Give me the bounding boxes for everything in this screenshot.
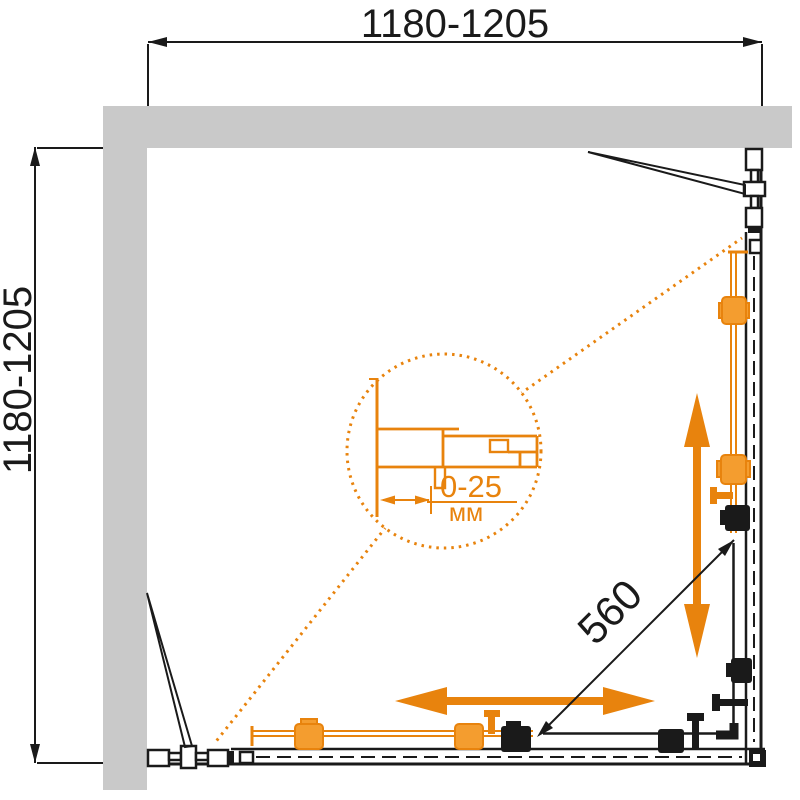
adjuster-handle-stem <box>715 492 733 499</box>
black-roller-right-lower <box>731 658 752 683</box>
detail-callout: 0-25 мм <box>214 238 742 744</box>
telescopic-segment <box>746 208 762 227</box>
leader-line-upper <box>520 238 742 394</box>
telescopic-segment <box>746 149 762 170</box>
depth-dimension-label: 1180-1205 <box>0 286 40 474</box>
enclosure-plan-drawing: 1180-1205 1180-1205 <box>0 0 800 800</box>
telescopic-link <box>169 753 181 760</box>
arrowhead-top <box>30 147 40 166</box>
width-dimension-label: 1180-1205 <box>361 2 549 46</box>
telescopic-band <box>748 227 762 233</box>
entry-dimension-label: 560 <box>568 570 651 653</box>
dimension-width: 1180-1205 <box>148 2 762 106</box>
corner-elbow <box>716 723 734 735</box>
corner-block-notch <box>753 754 760 761</box>
arrowhead-right <box>743 37 762 47</box>
knob-bar <box>687 713 704 721</box>
telescopic-segment <box>148 750 169 766</box>
arrowhead-bottom <box>30 744 40 763</box>
vertical-double-arrow <box>684 393 710 658</box>
telescopic-band <box>228 751 234 765</box>
telescopic-segment <box>750 240 761 253</box>
horizontal-double-arrow <box>395 687 655 715</box>
knob-stem <box>692 720 699 749</box>
telescopic-link <box>751 170 758 182</box>
black-roller-bottom-lower <box>658 729 684 753</box>
telescopic-segment <box>240 752 253 763</box>
leader-line-lower <box>214 527 386 744</box>
adjuster-handle-stem <box>488 715 495 734</box>
brace-clamp <box>744 182 765 196</box>
door-roller <box>722 297 746 324</box>
knob-bar <box>712 694 720 711</box>
black-roller-bottom <box>501 726 531 752</box>
right-sliding-door <box>710 252 750 533</box>
shower-enclosure-plan: 1180-1205 1180-1205 <box>0 0 800 800</box>
wall-left <box>103 106 147 790</box>
dimension-depth: 1180-1205 <box>0 147 103 763</box>
profile-notch <box>490 440 508 452</box>
fixed-glass-panels <box>501 505 752 753</box>
top-right-brace <box>588 152 745 194</box>
black-roller-right <box>725 505 750 531</box>
brace-clamp <box>181 746 196 768</box>
door-roller <box>721 455 746 484</box>
telescopic-link <box>751 196 758 208</box>
unit-label: мм <box>449 499 483 527</box>
door-roller <box>455 724 483 749</box>
arrowhead-left <box>148 37 167 47</box>
bottom-left-brace <box>147 593 192 747</box>
wall-top <box>103 106 792 148</box>
telescopic-link <box>196 753 208 760</box>
knob-stem <box>719 699 748 706</box>
dimension-entry: 560 <box>537 540 734 737</box>
door-roller <box>295 724 323 749</box>
telescopic-segment <box>208 750 228 766</box>
bottom-sliding-door <box>252 710 533 749</box>
